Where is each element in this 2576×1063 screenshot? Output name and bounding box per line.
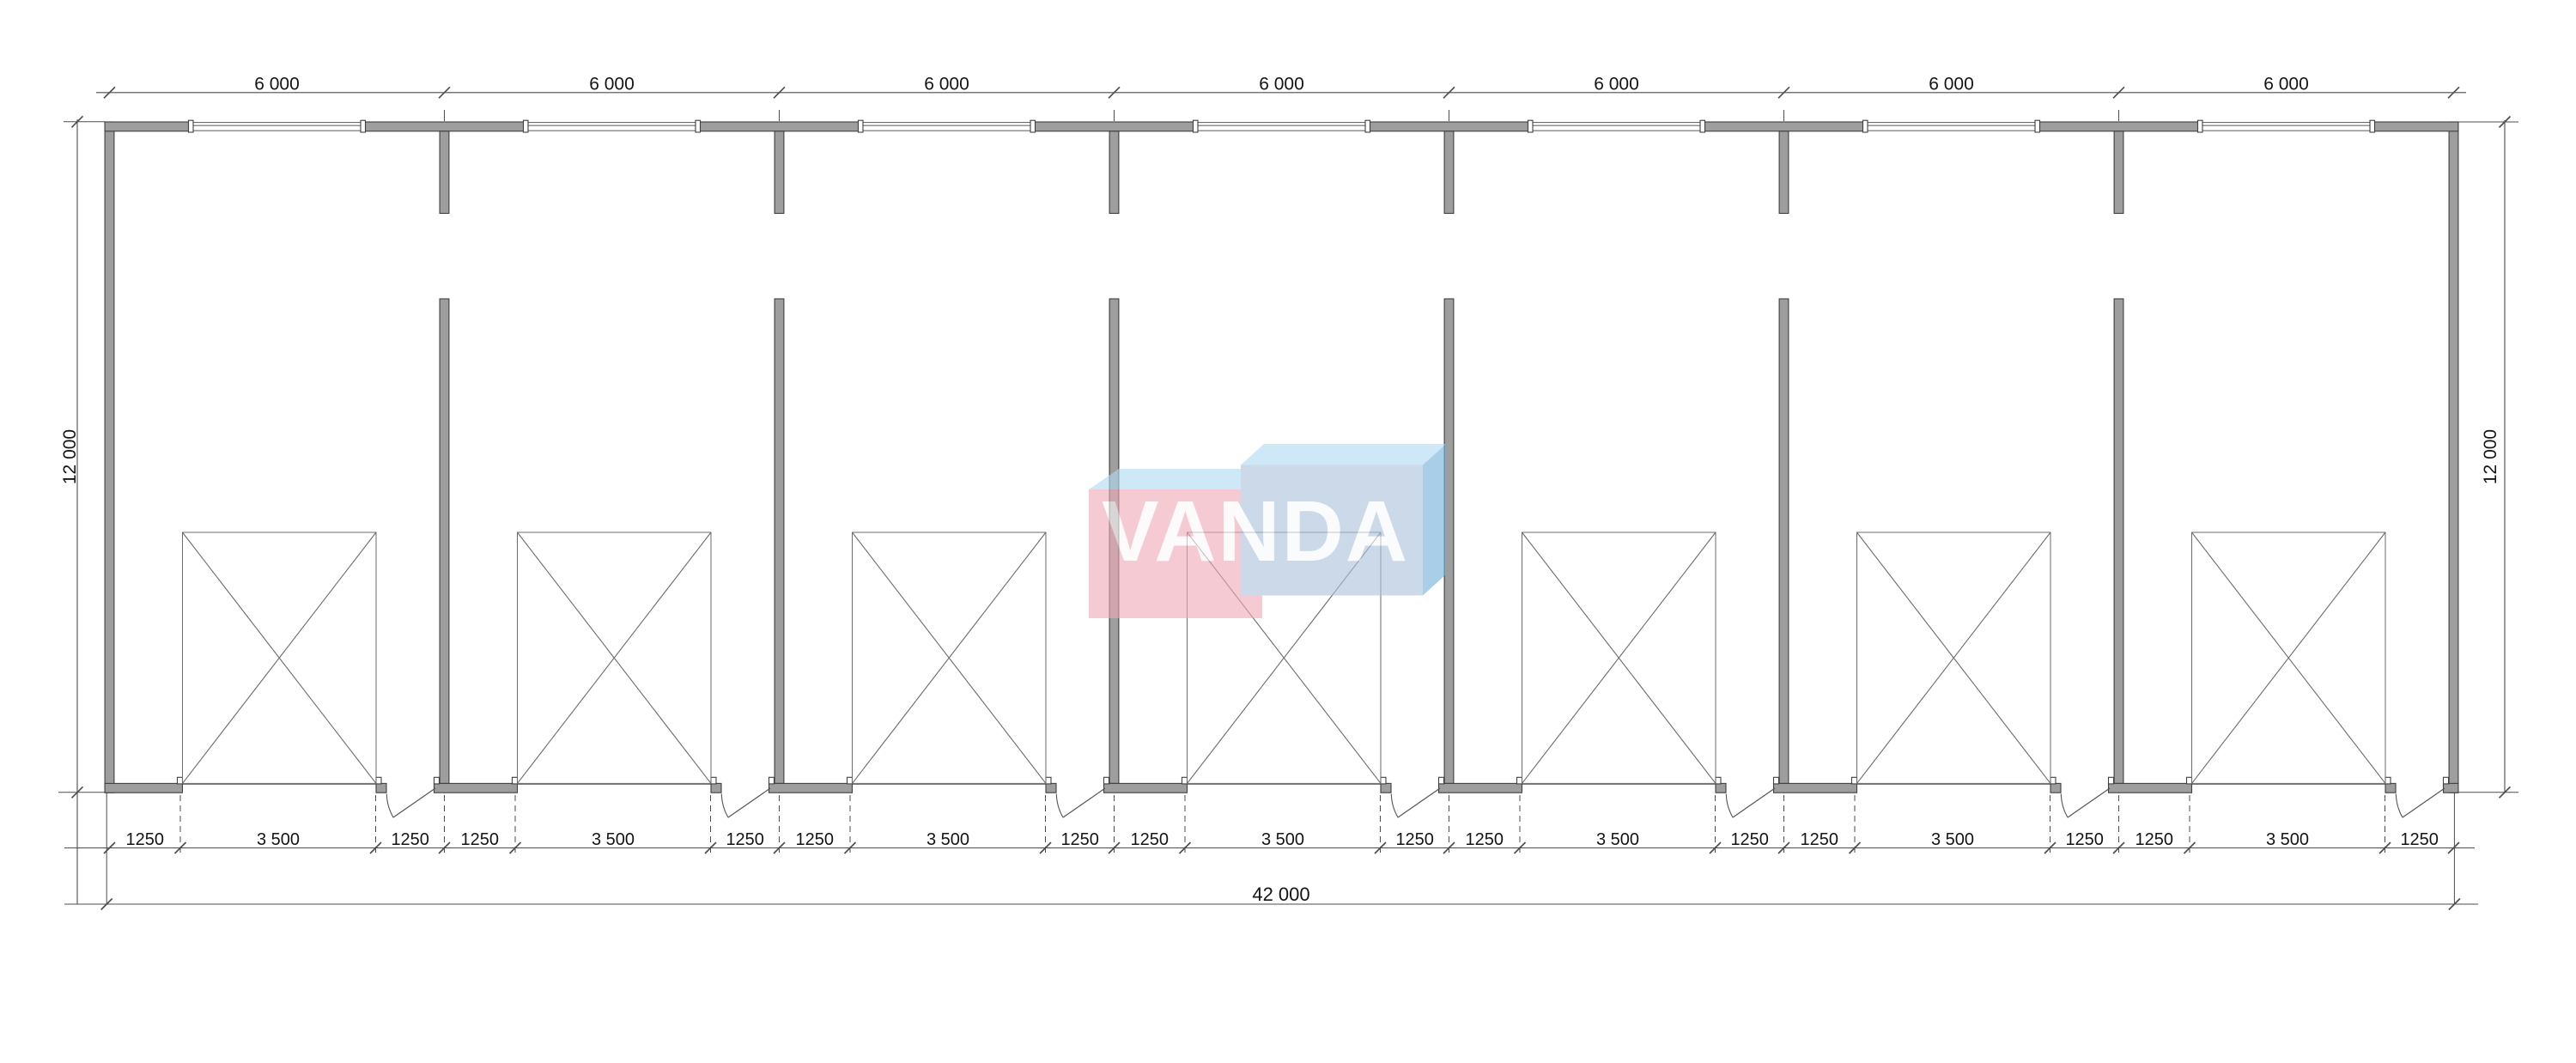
dim-label-opening-5: 3 500 [1596,830,1639,849]
entry-door-leaf-bay-6 [2068,788,2110,817]
partition-stub-2 [775,131,784,214]
dim-label-left-zone-5: 1250 [1466,830,1504,849]
window-bay-6 [1863,120,2040,132]
logo-right-box-top-face [1241,444,1446,465]
entry-door-leaf-bay-4 [1398,788,1440,817]
entry-door-swing-arc-bay-3 [1056,794,1063,818]
entry-door-jamb [2444,777,2449,784]
dim-label-bay-width-6: 6 000 [1929,75,1974,94]
dim-label-opening-1: 3 500 [257,830,300,849]
window-bay-1 [189,120,366,132]
window-jamb [1528,120,1534,132]
dim-label-opening-7: 3 500 [2266,830,2309,849]
entry-door-leaf-bay-5 [1733,788,1775,817]
exterior-wall-top-segment [1030,122,1198,131]
window-jamb [2198,120,2203,132]
dim-label-left-zone-3: 1250 [796,830,835,849]
garage-jamb-left [1182,777,1188,784]
bottom-wall-segment [2109,783,2192,793]
partition-wall-long-1 [440,299,449,783]
dim-label-right-zone-7: 1250 [2400,830,2439,849]
dim-label-right-zone-3: 1250 [1060,830,1099,849]
partition-stub-4 [1444,131,1454,214]
entry-door-leaf-bay-7 [2403,788,2445,817]
entry-door-swing-arc-bay-1 [386,794,393,818]
door-pier-bay-1 [376,783,386,793]
entry-door-leaf-bay-1 [393,788,435,817]
garage-jamb-right [2385,777,2391,784]
dim-label-left-zone-7: 1250 [2136,830,2174,849]
partition-stub-3 [1109,131,1119,214]
door-pier-bay-2 [711,783,721,793]
window-jamb [859,120,864,132]
garage-jamb-left [178,777,183,784]
dim-label-right-zone-2: 1250 [726,830,764,849]
dim-label-right-zone-4: 1250 [1395,830,1434,849]
exterior-wall-top-segment [2370,122,2458,131]
dim-label-bay-width-5: 6 000 [1594,75,1639,94]
dim-label-right-zone-5: 1250 [1730,830,1769,849]
garage-door-bay-5 [1517,532,1779,817]
dim-label-opening-3: 3 500 [927,830,969,849]
partition-wall-long-6 [2114,299,2123,783]
window-jamb [524,120,529,132]
garage-jamb-left [848,777,853,784]
entry-door-jamb [1104,777,1109,784]
floor-plan-svg: 6 0006 0006 0006 0006 0006 0006 00012503… [0,0,2576,1063]
entry-door-jamb [1439,777,1444,784]
bottom-wall-segment [1439,783,1522,793]
entry-door-swing-arc-bay-6 [2061,794,2068,818]
bottom-wall-segment [1104,783,1188,793]
garage-jamb-right [376,777,381,784]
garage-door-bay-7 [2187,532,2449,817]
garage-jamb-left [1852,777,1857,784]
dim-label-left-zone-2: 1250 [461,830,500,849]
dim-label-opening-4: 3 500 [1261,830,1304,849]
bottom-wall-segment [1774,783,1857,793]
vanda-logo: VANDA [1089,444,1446,618]
window-jamb [361,120,366,132]
dim-top-group: 6 0006 0006 0006 0006 0006 0006 000 [96,75,2466,122]
door-pier-bay-6 [2050,783,2061,793]
entry-door-leaf-bay-3 [1063,788,1105,817]
door-pier-bay-5 [1716,783,1726,793]
exterior-wall-top-segment [2035,122,2202,131]
entry-door-jamb [434,777,440,784]
garage-jamb-right [1716,777,1721,784]
entry-door-jamb [769,777,775,784]
dim-left-group: 12 000 [58,116,105,904]
window-jamb [189,120,194,132]
door-pier-bay-7 [2385,783,2396,793]
garage-jamb-left [2187,777,2192,784]
door-pier-bay-4 [1381,783,1391,793]
garage-jamb-right [1381,777,1386,784]
bottom-wall-segment [2444,783,2458,793]
partition-wall-long-5 [1779,299,1789,783]
entry-door-swing-arc-bay-4 [1391,794,1398,818]
dim-label-left-zone-6: 1250 [1801,830,1839,849]
entry-door-swing-arc-bay-7 [2396,794,2403,818]
partition-stub-6 [2114,131,2123,214]
exterior-wall-top-segment [696,122,863,131]
garage-jamb-left [513,777,518,784]
dim-label-bay-width-7: 6 000 [2263,75,2309,94]
exterior-wall-top-segment [361,122,528,131]
dim-label-bay-width-3: 6 000 [924,75,969,94]
window-jamb [1700,120,1705,132]
exterior-wall-top-segment [1365,122,1533,131]
garage-door-bay-1 [178,532,440,817]
dim-label-bay-width-1: 6 000 [254,75,300,94]
dim-label-depth-left: 12 000 [60,429,80,484]
window-jamb [2370,120,2375,132]
entry-door-swing-arc-bay-2 [721,794,728,818]
dim-label-total-width: 42 000 [1252,884,1309,905]
dim-label-left-zone-1: 1250 [126,830,165,849]
window-bay-4 [1194,120,1370,132]
entry-door-swing-arc-bay-5 [1726,794,1733,818]
garage-jamb-right [2050,777,2056,784]
window-bay-7 [2198,120,2375,132]
exterior-wall-left [105,122,114,793]
window-jamb [1365,120,1370,132]
garage-door-bay-3 [848,532,1109,817]
exterior-wall-right [2449,122,2458,793]
window-jamb [1030,120,1036,132]
exterior-wall-top-segment [105,122,193,131]
window-bay-5 [1528,120,1705,132]
dim-label-right-zone-6: 1250 [2065,830,2104,849]
partition-stub-5 [1779,131,1789,214]
dim-label-right-zone-1: 1250 [391,830,429,849]
dim-bottom-group: 12503 500125012503 500125012503 50012501… [64,795,2475,853]
garage-jamb-right [711,777,716,784]
garage-jamb-right [1046,777,1051,784]
partition-stub-1 [440,131,449,214]
logo-text: VANDA [1102,483,1409,580]
dim-label-depth-right: 12 000 [2481,429,2500,484]
bottom-wall-segment [769,783,853,793]
entry-door-leaf-bay-2 [728,788,770,817]
partition-wall-long-2 [775,299,784,783]
window-jamb [1863,120,1868,132]
window-bay-3 [859,120,1036,132]
garage-door-bay-2 [513,532,775,817]
dim-label-opening-6: 3 500 [1931,830,1974,849]
bottom-wall-segment [434,783,518,793]
floor-plan-page: 6 0006 0006 0006 0006 0006 0006 00012503… [0,0,2576,1063]
logo-right-box-side-face [1423,444,1446,596]
window-jamb [2035,120,2040,132]
exterior-wall-top-segment [1700,122,1868,131]
window-jamb [1194,120,1199,132]
dim-label-left-zone-4: 1250 [1131,830,1170,849]
garage-door-bay-6 [1852,532,2114,817]
entry-door-jamb [1774,777,1779,784]
dim-label-bay-width-2: 6 000 [589,75,635,94]
entry-door-jamb [2109,777,2114,784]
bottom-wall-segment [105,783,182,793]
window-jamb [696,120,701,132]
dim-label-opening-2: 3 500 [592,830,635,849]
garage-jamb-left [1517,777,1522,784]
dim-label-bay-width-4: 6 000 [1259,75,1304,94]
door-pier-bay-3 [1046,783,1056,793]
dim-right-group: 12 000 [2458,117,2518,799]
window-bay-2 [524,120,701,132]
